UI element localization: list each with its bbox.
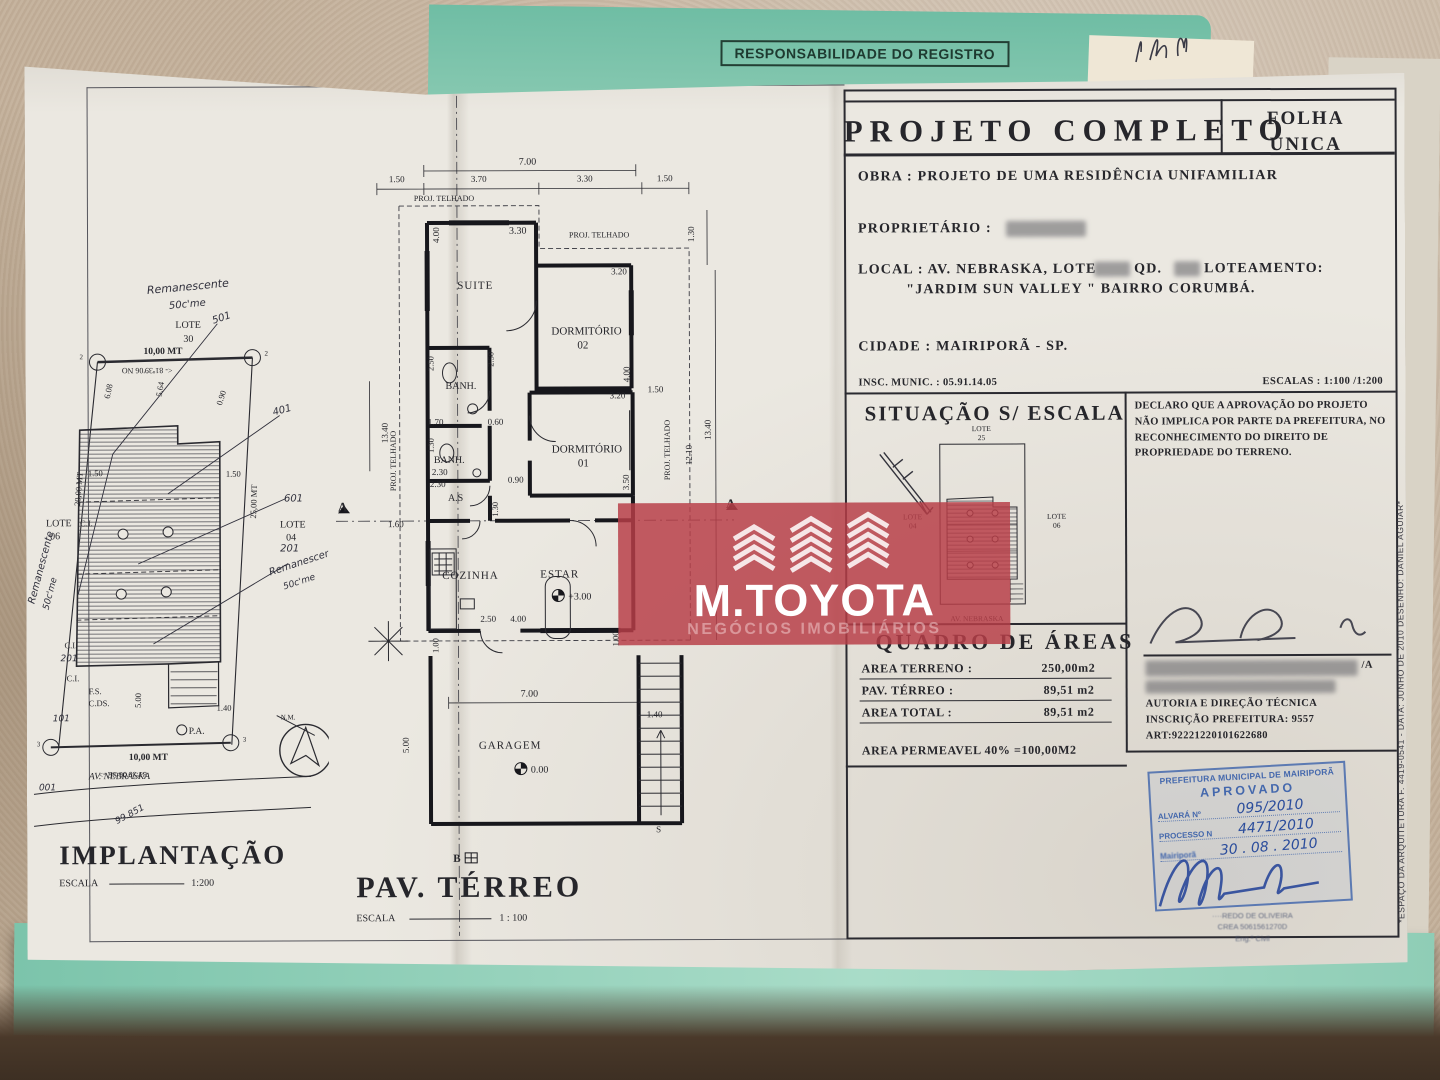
dim-1340r: 13.40 xyxy=(703,419,713,440)
hw-601: 601 xyxy=(284,493,303,504)
room-dorm1-num: 01 xyxy=(578,457,589,469)
dim-150-r: 1.50 xyxy=(226,469,241,479)
dim-g500: 5.00 xyxy=(401,737,411,753)
room-garagem: GARAGEM xyxy=(479,740,542,752)
north-label: N.M. xyxy=(281,713,296,721)
hw-001: 001 xyxy=(39,783,56,793)
stair-s: S xyxy=(656,824,661,834)
proprietario-redaction xyxy=(1006,221,1086,237)
dim-10mt-top: 10,00 MT xyxy=(143,347,183,357)
room-dorm1: DORMITÓRIO xyxy=(552,443,622,455)
fs-label: F.S. xyxy=(89,686,102,696)
tree-symbol xyxy=(368,621,408,661)
lote-30-label: LOTE xyxy=(175,320,201,331)
section-b: B xyxy=(453,853,461,865)
dim-10mt-bot: 10,00 MT xyxy=(129,753,169,763)
implantacao-drawing: Remanescente 50c'me LOTE 30 501 10,00 MT… xyxy=(17,263,329,936)
engineer-crea: CREA 5061561270D xyxy=(1218,922,1288,931)
insc-munic: INSC. MUNIC. : 05.91.14.05 xyxy=(859,377,998,388)
dim-st140: 1.40 xyxy=(647,709,663,719)
street-label: AV. NEBRASKA xyxy=(88,772,150,782)
autoria-line1: AUTORIA E DIREÇÃO TÉCNICA xyxy=(1146,698,1318,710)
dim-1210: 12.10 xyxy=(684,444,694,465)
local-line2: "JARDIM SUN VALLEY " BAIRRO CORUMBÁ. xyxy=(906,281,1255,298)
proj-telhado-l: PROJ. TELHADO xyxy=(389,431,398,492)
plan-stairs xyxy=(639,663,683,815)
dim-top-7: 7.00 xyxy=(519,157,537,168)
engineer-signature xyxy=(1141,821,1356,923)
dim-k250: 2.50 xyxy=(480,614,496,624)
quadro-row2-label: PAV. TÉRREO : xyxy=(862,683,954,698)
folha-line2: ÚNICA xyxy=(1270,133,1342,154)
room-dorm2-num: 02 xyxy=(577,339,588,351)
lote-04-num: 04 xyxy=(286,532,296,543)
hw-remanescente: Remanescente xyxy=(146,277,229,297)
level-estar: +3.00 xyxy=(568,591,591,602)
hw-99851: 99.851 xyxy=(114,803,146,827)
cds-label: C.DS. xyxy=(89,698,110,708)
dim-d1w: 3.20 xyxy=(610,390,626,400)
room-banh1: BANH. xyxy=(446,381,477,392)
local-line1c: LOTEAMENTO: xyxy=(1204,261,1324,277)
dim-v100a: 1.00 xyxy=(430,638,440,653)
declaro-text: DECLARO QUE A APROVAÇÃO DO PROJETO NÃO I… xyxy=(1135,398,1387,462)
lote-06-label: LOTE xyxy=(46,518,72,529)
dim-suite-h: 4.00 xyxy=(431,227,441,243)
prefeitura-approval-stamp: PREFEITURA MUNICIPAL DE MAIRIPORÃ APROVA… xyxy=(1147,761,1353,912)
lote-30-num: 30 xyxy=(183,334,193,345)
dim-150-l: 1.50 xyxy=(88,468,103,478)
watermark-brand: M.TOYOTA xyxy=(694,580,935,621)
pav-escala-label: ESCALA xyxy=(356,913,396,924)
architect-name-redaction xyxy=(1146,660,1358,677)
proj-telhado-r: PROJ. TELHADO xyxy=(663,420,672,481)
pen-scribble xyxy=(1126,22,1216,72)
quadro-permeavel: AREA PERMEAVEL 40% =100,00M2 xyxy=(862,743,1077,759)
hw-401: 401 xyxy=(272,403,293,419)
dim-suite-w: 3.30 xyxy=(509,226,527,237)
ci-1: C.I. xyxy=(80,518,93,528)
architect-crea-redaction xyxy=(1146,680,1336,694)
dim-150b: 1.50 xyxy=(657,173,673,183)
dim-250a: 2.50 xyxy=(425,356,435,371)
implantacao-escala-label: ESCALA xyxy=(59,878,99,889)
pt2a: 2 xyxy=(79,353,83,361)
engineer-name: ····REDO DE OLIVEIRA xyxy=(1212,911,1293,920)
pt3a: 3 xyxy=(37,740,41,748)
quadro-row3-label: AREA TOTAL : xyxy=(862,705,953,720)
watermark-buildings-icon xyxy=(729,508,899,573)
dim-150a: 1.50 xyxy=(389,174,405,184)
quadro-row1-label: AREA TERRENO : xyxy=(862,661,973,676)
hw-201b: 201 xyxy=(60,654,77,664)
dim-25mt: 25,00 MT xyxy=(248,484,259,519)
dim-130c: 1.30 xyxy=(490,502,500,517)
autoria-line3: ART:92221220101622680 xyxy=(1146,730,1268,741)
local-line1: LOCAL : AV. NEBRASKA, LOTE xyxy=(858,262,1096,279)
room-cozinha: COZINHA xyxy=(442,570,499,582)
ci-3: C.I. xyxy=(67,673,80,683)
dim-608: 6.08 xyxy=(102,383,115,400)
lote-04-label: LOTE xyxy=(280,519,306,530)
hw-201: 201 xyxy=(280,543,299,554)
implantacao-escala-value: 1:200 xyxy=(191,878,214,889)
dim-g700: 7.00 xyxy=(521,689,539,700)
stamp-alvara-label: ALVARÁ Nº xyxy=(1158,810,1202,821)
dim-160: 1.60 xyxy=(388,519,404,529)
proj-telhado-2: PROJ. TELHADO xyxy=(569,230,630,239)
dim-250b: 2.50 xyxy=(485,352,495,367)
local-redaction-2 xyxy=(1174,261,1200,276)
watermark-tagline: NEGÓCIOS IMOBILIÁRIOS xyxy=(687,620,941,639)
engineer-role: Eng.º Civil xyxy=(1235,934,1269,943)
dim-170: 1.70 xyxy=(428,417,444,427)
sit-lote-top: LOTE xyxy=(972,424,992,433)
dim-130-r: 1.30 xyxy=(686,226,696,242)
dim-d1t: 4.00 xyxy=(621,366,631,382)
folha-label: FOLHA ÚNICA xyxy=(1221,106,1391,158)
dim-d1h: 3.50 xyxy=(621,474,631,490)
dim-130b: 1.30 xyxy=(426,438,436,453)
sit-n25: 25 xyxy=(978,433,986,442)
dim-060: 0.60 xyxy=(488,417,504,427)
quadro-row2-value: 89,51 m2 xyxy=(1044,683,1095,698)
local-line1b: QD. xyxy=(1134,261,1162,277)
dim-230a: 2.30 xyxy=(432,467,448,477)
realtor-watermark: M.TOYOTA NEGÓCIOS IMOBILIÁRIOS xyxy=(618,502,1010,645)
room-estar: ESTAR xyxy=(540,568,579,580)
pav-escala-value: 1 : 100 xyxy=(499,913,527,924)
hw-rem2b: 50c'me xyxy=(282,572,317,592)
bearing-top: <- 81º39'06 NO xyxy=(122,366,173,375)
dim-230b: 2.30 xyxy=(430,479,446,489)
pa-label: P.A. xyxy=(189,727,205,737)
pt2b: 2 xyxy=(264,350,268,358)
implantacao-title: IMPLANTAÇÃO xyxy=(59,840,286,871)
quadro-row1-value: 250,00m2 xyxy=(1042,661,1096,676)
proj-telhado-1: PROJ. TELHADO xyxy=(414,194,475,203)
blueprint-sheet: Remanescente 50c'me LOTE 30 501 10,00 MT… xyxy=(24,54,1407,975)
room-suite: SUITE xyxy=(457,280,493,292)
hw-501: 501 xyxy=(211,310,233,326)
pav-terreo-title: PAV. TÉRREO xyxy=(356,870,582,904)
pa-point xyxy=(177,725,187,735)
dim-090p: 0.90 xyxy=(508,475,524,485)
sofa-shadow xyxy=(0,985,1440,1080)
dim-564: 5.64 xyxy=(154,380,167,397)
escalas: ESCALAS : 1:100 /1:200 xyxy=(1263,376,1384,387)
folder-registry-stamp: RESPONSABILIDADE DO REGISTRO xyxy=(720,40,1009,67)
autoria-line2: INSCRIÇÃO PREFEITURA: 9557 xyxy=(1146,714,1315,726)
photo-background: RESPONSABILIDADE DO REGISTRO xyxy=(0,0,1440,1080)
sheet-title: PROJETO COMPLETO xyxy=(844,112,1221,149)
dim-090: 0.90 xyxy=(214,389,228,406)
dim-500: 5.00 xyxy=(133,693,143,708)
engineer-id-block: ····REDO DE OLIVEIRA CREA 5061561270D En… xyxy=(1167,910,1337,944)
room-dorm2: DORMITÓRIO xyxy=(551,325,621,337)
ci-2: C.I. xyxy=(64,640,77,650)
dim-d2w: 3.20 xyxy=(611,266,627,276)
proprietario-line: PROPRIETÁRIO : xyxy=(858,221,992,237)
dim-330a: 3.30 xyxy=(577,173,593,183)
dim-rt150: 1.50 xyxy=(648,384,664,394)
dim-k400: 4.00 xyxy=(510,614,526,624)
obra-line: OBRA : PROJETO DE UMA RESIDÊNCIA UNIFAMI… xyxy=(858,168,1278,185)
room-as: A.S xyxy=(448,493,463,504)
local-redaction-1 xyxy=(1094,262,1130,277)
architect-signature xyxy=(1145,588,1385,659)
pt3b: 3 xyxy=(243,736,247,744)
hw-rem3b: 50c'me xyxy=(42,576,60,611)
sit-lote-right: LOTE xyxy=(1047,512,1067,521)
implantacao-north xyxy=(277,715,330,776)
quadro-row3-value: 89,51 m2 xyxy=(1044,705,1095,720)
hw-101: 101 xyxy=(53,714,70,724)
folha-line1: FOLHA xyxy=(1267,108,1345,129)
dim-370: 3.70 xyxy=(471,174,487,184)
dim-140: 1.40 xyxy=(217,703,232,713)
signature-suffix: /A xyxy=(1362,660,1373,671)
cidade-line: CIDADE : MAIRIPORÃ - SP. xyxy=(858,339,1068,356)
hw-socme: 50c'me xyxy=(169,298,207,312)
room-banh2: BANH. xyxy=(434,455,465,466)
sit-n06: 06 xyxy=(1053,521,1061,530)
level-garagem: 0.00 xyxy=(531,765,549,776)
section-a-left: A xyxy=(338,499,348,514)
